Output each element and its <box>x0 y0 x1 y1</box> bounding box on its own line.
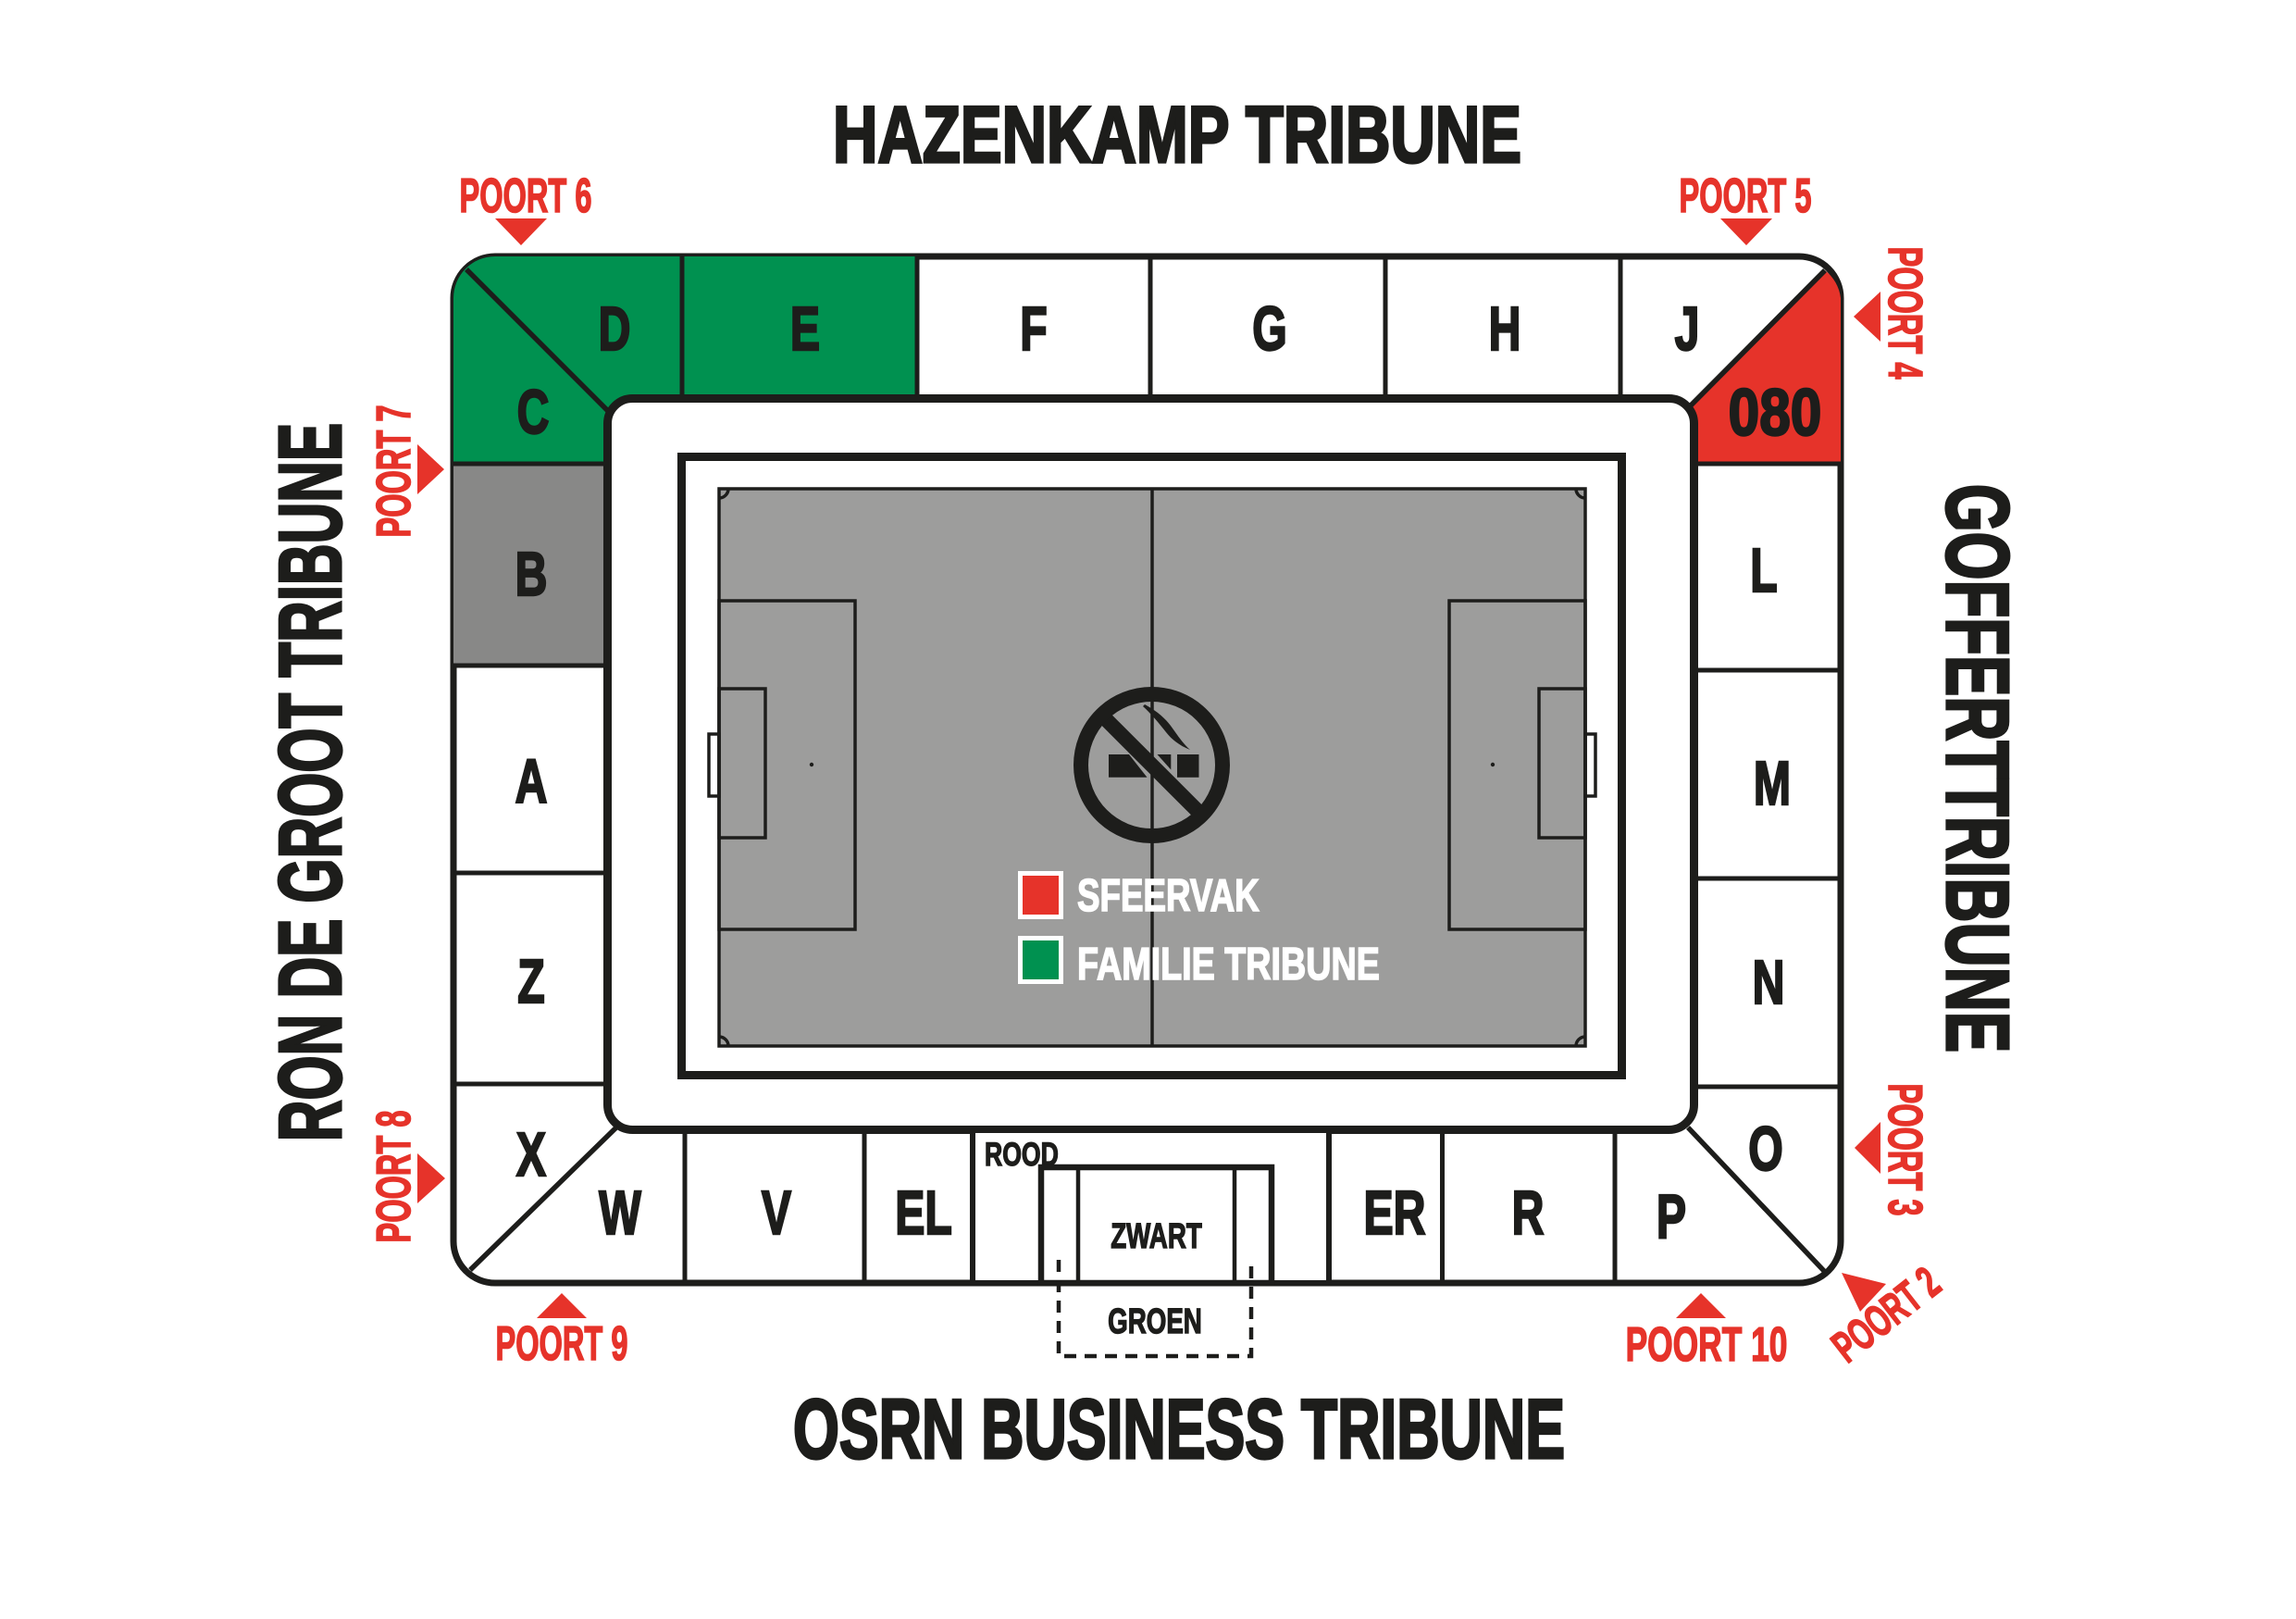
svg-text:FAMILIE TRIBUNE: FAMILIE TRIBUNE <box>1077 939 1380 990</box>
svg-text:POORT 5: POORT 5 <box>1679 169 1811 223</box>
svg-text:ER: ER <box>1364 1178 1426 1248</box>
svg-text:C: C <box>517 378 550 447</box>
svg-text:POORT 6: POORT 6 <box>459 169 591 223</box>
svg-text:OSRN BUSINESS TRIBUNE: OSRN BUSINESS TRIBUNE <box>793 1382 1565 1476</box>
svg-text:POORT 9: POORT 9 <box>495 1317 627 1371</box>
svg-text:R: R <box>1512 1178 1545 1248</box>
svg-text:SFEERVAK: SFEERVAK <box>1077 871 1260 921</box>
svg-text:H: H <box>1489 294 1521 364</box>
svg-text:G: G <box>1252 294 1287 364</box>
svg-text:D: D <box>599 294 631 364</box>
svg-text:O: O <box>1748 1115 1783 1184</box>
svg-text:GOFFERTTRIBUNE: GOFFERTTRIBUNE <box>1928 484 2028 1052</box>
svg-text:POORT 2: POORT 2 <box>1823 1258 1950 1372</box>
svg-text:F: F <box>1020 294 1047 364</box>
svg-text:POORT 7: POORT 7 <box>367 405 421 537</box>
svg-text:L: L <box>1750 536 1777 605</box>
svg-text:080: 080 <box>1729 375 1822 449</box>
svg-text:V: V <box>762 1178 791 1248</box>
svg-text:E: E <box>790 294 820 364</box>
svg-text:Z: Z <box>517 947 544 1016</box>
svg-text:EL: EL <box>895 1178 952 1248</box>
svg-text:POORT 4: POORT 4 <box>1878 246 1931 379</box>
svg-text:HAZENKAMP TRIBUNE: HAZENKAMP TRIBUNE <box>833 91 1521 180</box>
svg-text:POORT 3: POORT 3 <box>1878 1083 1931 1215</box>
svg-text:RON DE GROOT TRIBUNE: RON DE GROOT TRIBUNE <box>261 423 360 1141</box>
svg-text:ZWART: ZWART <box>1111 1217 1202 1256</box>
svg-text:GROEN: GROEN <box>1108 1302 1202 1341</box>
svg-text:A: A <box>515 747 548 816</box>
svg-text:P: P <box>1657 1182 1686 1252</box>
svg-text:W: W <box>599 1178 641 1248</box>
svg-text:POORT 10: POORT 10 <box>1626 1318 1788 1371</box>
svg-text:POORT 8: POORT 8 <box>367 1110 421 1242</box>
svg-text:X: X <box>516 1120 546 1189</box>
svg-text:B: B <box>515 540 548 609</box>
svg-text:J: J <box>1675 294 1700 364</box>
svg-text:M: M <box>1754 749 1791 818</box>
svg-text:N: N <box>1753 948 1785 1017</box>
